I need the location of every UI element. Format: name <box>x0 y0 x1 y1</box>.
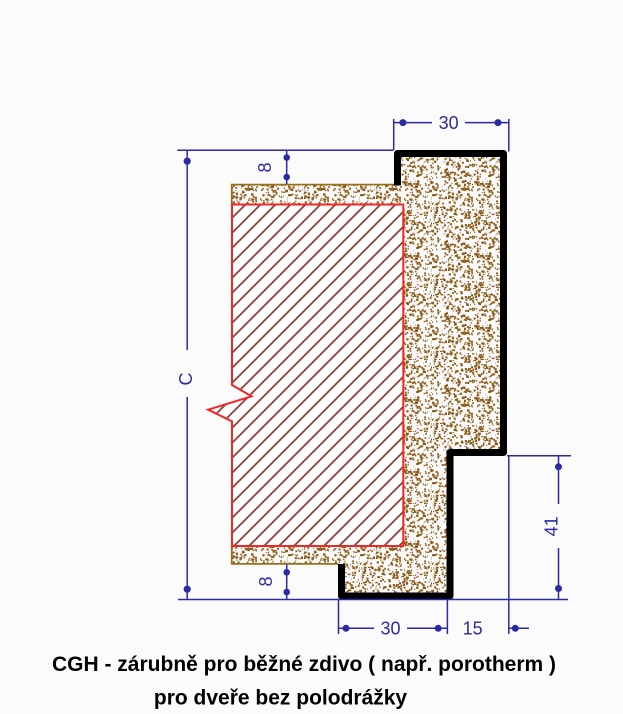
svg-text:30: 30 <box>380 619 400 639</box>
svg-text:15: 15 <box>463 619 483 639</box>
svg-text:pro dveře bez polodrážky: pro dveře bez polodrážky <box>154 687 408 710</box>
svg-text:41: 41 <box>542 516 562 536</box>
svg-text:8: 8 <box>256 576 276 586</box>
svg-text:30: 30 <box>439 113 459 133</box>
svg-text:8: 8 <box>255 162 275 172</box>
svg-text:CGH - zárubně pro běžné zdivo: CGH - zárubně pro běžné zdivo ( např. po… <box>52 653 556 676</box>
svg-text:C: C <box>176 373 196 386</box>
